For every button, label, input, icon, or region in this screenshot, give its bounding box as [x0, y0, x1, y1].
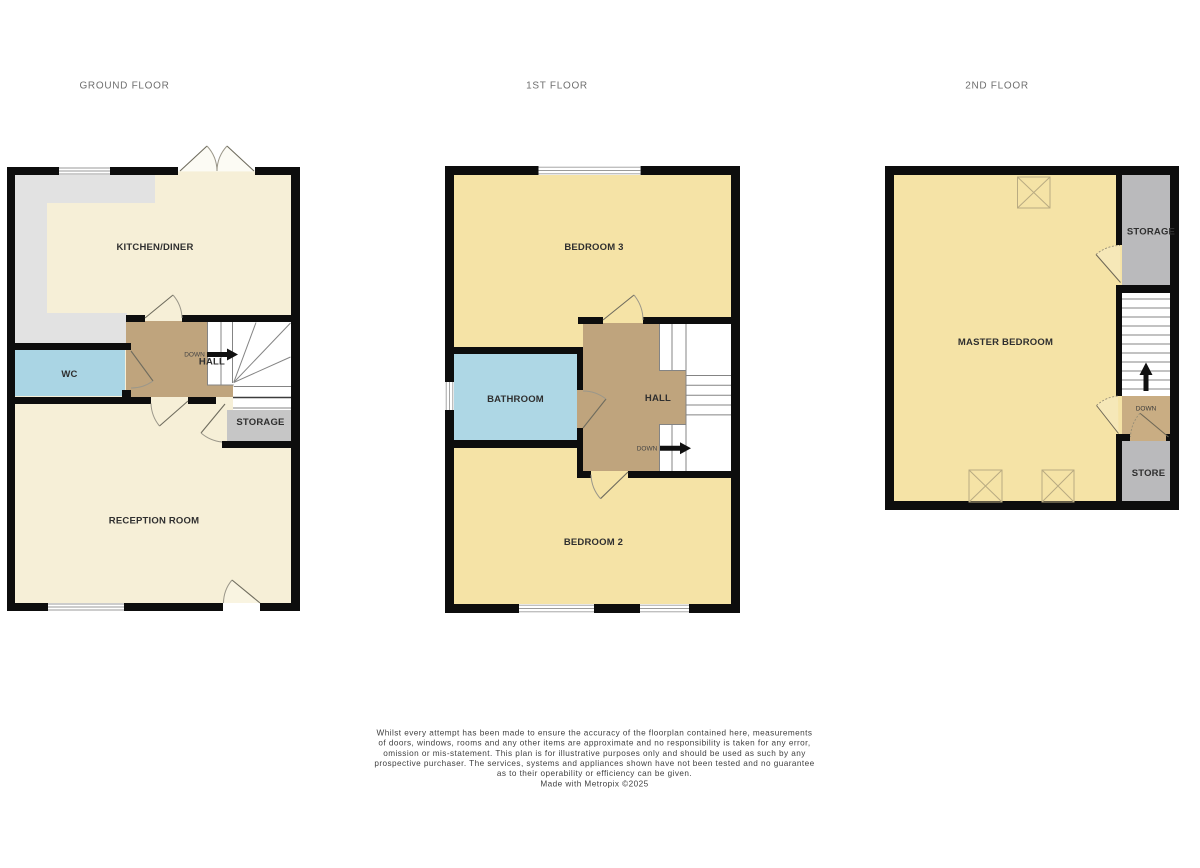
svg-text:BATHROOM: BATHROOM	[487, 394, 544, 405]
svg-text:Made with Metropix ©2025: Made with Metropix ©2025	[540, 779, 648, 788]
svg-text:RECEPTION ROOM: RECEPTION ROOM	[109, 516, 199, 527]
svg-text:Whilst every attempt has been: Whilst every attempt has been made to en…	[377, 728, 813, 737]
svg-text:BEDROOM 2: BEDROOM 2	[564, 537, 623, 548]
svg-text:HALL: HALL	[645, 393, 671, 404]
svg-text:KITCHEN/DINER: KITCHEN/DINER	[116, 242, 193, 253]
svg-text:MASTER BEDROOM: MASTER BEDROOM	[958, 337, 1053, 348]
svg-text:STORAGE: STORAGE	[236, 417, 284, 428]
svg-text:DOWN: DOWN	[637, 446, 658, 453]
svg-text:WC: WC	[61, 369, 77, 380]
svg-text:2ND FLOOR: 2ND FLOOR	[965, 81, 1029, 92]
svg-text:STORAGE: STORAGE	[1127, 227, 1175, 238]
svg-text:as to their operability or eff: as to their operability or efficiency ca…	[497, 769, 692, 778]
svg-text:of doors, windows, rooms and a: of doors, windows, rooms and any other i…	[378, 739, 810, 748]
svg-text:GROUND FLOOR: GROUND FLOOR	[79, 81, 169, 92]
svg-text:STORE: STORE	[1132, 468, 1166, 479]
svg-text:DOWN: DOWN	[1136, 406, 1157, 413]
svg-text:prospective purchaser. The ser: prospective purchaser. The services, sys…	[374, 759, 814, 768]
svg-text:1ST FLOOR: 1ST FLOOR	[526, 81, 588, 92]
svg-text:BEDROOM 3: BEDROOM 3	[564, 242, 623, 253]
svg-text:DOWN: DOWN	[184, 352, 205, 359]
svg-text:omission or mis-statement. Thi: omission or mis-statement. This plan is …	[383, 749, 806, 758]
